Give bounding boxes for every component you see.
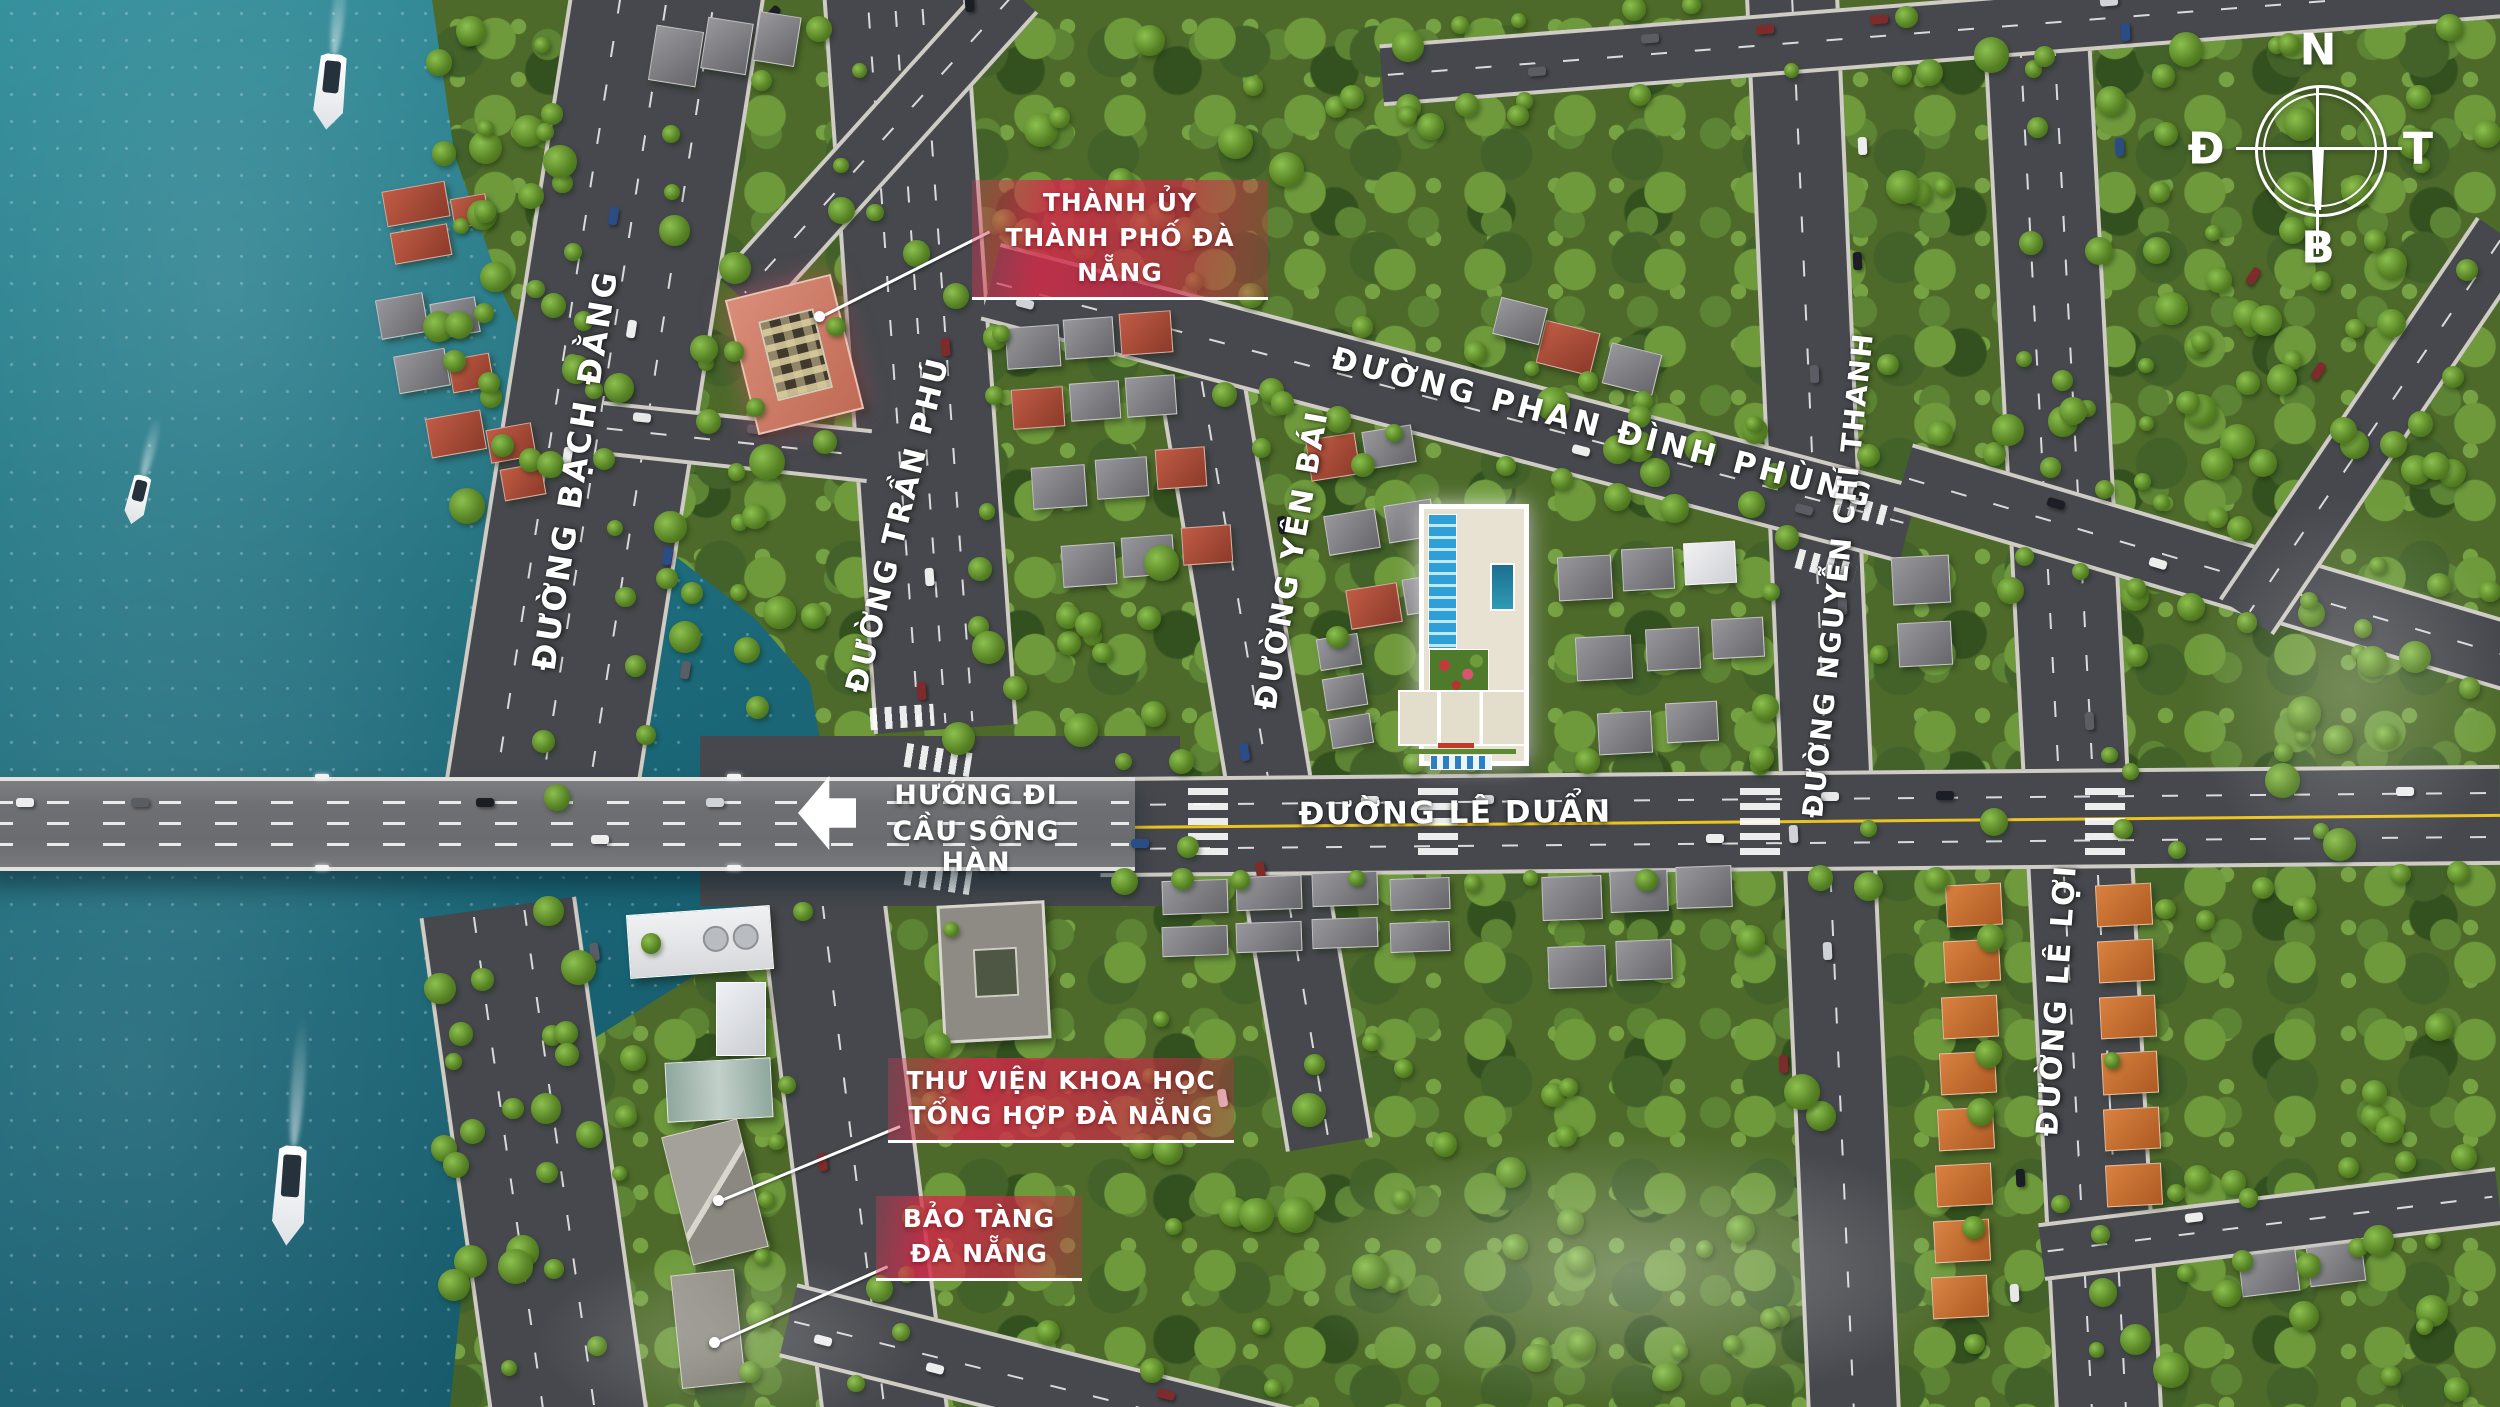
- tree: [943, 283, 969, 309]
- villa: [2103, 1107, 2161, 1152]
- tree: [2252, 877, 2274, 899]
- tree: [1559, 1078, 1578, 1097]
- tree: [813, 430, 837, 454]
- tree: [2442, 366, 2464, 388]
- tree: [866, 204, 883, 221]
- tree: [1974, 37, 2010, 73]
- tree: [1752, 694, 1779, 721]
- tree: [2249, 449, 2277, 477]
- tree: [826, 317, 846, 337]
- tree: [681, 582, 703, 604]
- tree: [2427, 573, 2451, 597]
- villa: [1005, 324, 1062, 370]
- tree: [1304, 1054, 1325, 1075]
- tree: [2374, 724, 2399, 749]
- villa: [1181, 524, 1234, 565]
- tree: [972, 631, 1005, 664]
- tree: [833, 158, 849, 174]
- tree: [2236, 371, 2260, 395]
- tree: [2380, 431, 2407, 458]
- tree: [1557, 1208, 1585, 1236]
- tree: [1141, 701, 1166, 726]
- villa: [1119, 310, 1174, 356]
- villa: [1945, 883, 2003, 928]
- tree: [1392, 30, 1424, 62]
- tree: [544, 1259, 564, 1279]
- tree: [2479, 581, 2500, 603]
- direction-line2: CẦU SÔNG HÀN: [854, 816, 1098, 878]
- tree: [1671, 1343, 1688, 1360]
- admin-tower-building: [716, 982, 766, 1056]
- tree: [778, 1076, 796, 1094]
- tree: [2059, 397, 2087, 425]
- inner-courtyard: [972, 947, 1019, 998]
- tree: [1144, 545, 1180, 581]
- tree: [534, 37, 550, 53]
- tree: [2015, 547, 2034, 566]
- villa: [1155, 446, 1208, 489]
- tree: [724, 341, 745, 362]
- tree: [607, 520, 623, 536]
- car: [1858, 137, 1868, 155]
- tree: [1927, 421, 1953, 447]
- tree: [2089, 1278, 2117, 1306]
- tree: [2177, 1264, 2195, 1282]
- tree: [801, 603, 827, 629]
- villa: [648, 25, 704, 88]
- tree: [758, 1191, 775, 1208]
- tree: [2239, 1188, 2258, 1207]
- tree: [1997, 577, 2024, 604]
- tree: [453, 218, 469, 234]
- tree: [1153, 1011, 1169, 1027]
- callout-thu-vien: THƯ VIỆN KHOA HỌC TỔNG HỢP ĐÀ NẴNG: [888, 1058, 1234, 1143]
- bridge-lamp: [315, 865, 329, 870]
- compass-letter-right: T: [2403, 124, 2433, 175]
- villa: [1011, 386, 1066, 430]
- road-right-diagonal: [2219, 217, 2500, 635]
- tree: [1140, 1358, 1164, 1382]
- tree: [1165, 1218, 1182, 1235]
- callout-bao-tang: BẢO TÀNG ĐÀ NẴNG: [876, 1196, 1082, 1281]
- tree: [456, 16, 486, 46]
- tree: [2473, 120, 2500, 149]
- tree: [1877, 354, 1899, 376]
- tree: [669, 621, 701, 653]
- rooftop-pool: [1490, 563, 1515, 611]
- tree: [480, 262, 511, 293]
- villa: [1323, 508, 1381, 556]
- tree: [751, 70, 772, 91]
- villa: [1328, 713, 1374, 749]
- car: [131, 798, 149, 807]
- car: [924, 567, 934, 586]
- tree: [1726, 1215, 1755, 1244]
- boat-deck: [322, 60, 342, 93]
- villa: [1125, 374, 1178, 417]
- tree: [2357, 646, 2388, 677]
- tree: [1964, 1334, 1985, 1355]
- villa: [1235, 921, 1302, 953]
- project-banner: [1438, 743, 1474, 748]
- tree: [443, 350, 465, 372]
- car: [2309, 361, 2327, 381]
- tree: [1808, 865, 1834, 891]
- tree: [531, 1093, 562, 1124]
- boat-deck: [281, 1154, 302, 1197]
- villa: [2105, 1163, 2163, 1208]
- car: [2085, 712, 2095, 730]
- car: [1528, 66, 1547, 76]
- zebra-crossing: [1740, 781, 1780, 855]
- callout-bao-tang-line2: ĐÀ NẴNG: [884, 1236, 1074, 1271]
- villa: [1389, 921, 1450, 953]
- tree: [2376, 1116, 2403, 1143]
- tree: [2139, 416, 2155, 432]
- tree: [2338, 1157, 2359, 1178]
- tree: [696, 409, 721, 434]
- tree: [1762, 583, 1780, 601]
- tree: [2052, 370, 2073, 391]
- boat-hull: [311, 52, 349, 131]
- tree: [2390, 864, 2410, 884]
- boat-deck: [132, 479, 148, 502]
- tree: [1567, 1330, 1596, 1359]
- tree: [1511, 13, 1526, 28]
- tree: [2091, 1225, 2109, 1243]
- villa: [1311, 871, 1378, 907]
- tree: [1775, 525, 1799, 549]
- tree: [1524, 361, 1539, 376]
- tree: [1854, 872, 1883, 901]
- tree: [1522, 1344, 1550, 1372]
- car: [1755, 24, 1774, 34]
- tree: [1760, 1308, 1781, 1329]
- tree: [2267, 365, 2297, 395]
- car: [16, 798, 34, 807]
- tree: [2191, 331, 2212, 352]
- tree: [2436, 14, 2463, 41]
- lane-line: [1909, 478, 2500, 658]
- leader-dot-thu-vien: [713, 1195, 724, 1206]
- tree: [1635, 869, 1657, 891]
- tree: [1115, 753, 1132, 770]
- tree: [654, 511, 687, 544]
- callout-thanh-uy: THÀNH ỦY THÀNH PHỐ ĐÀ NẴNG: [972, 180, 1268, 300]
- tree: [2101, 747, 2117, 763]
- tree: [2369, 557, 2387, 575]
- car: [2115, 138, 2125, 156]
- tree: [1352, 1254, 1387, 1289]
- tree: [449, 1022, 473, 1046]
- car: [1641, 33, 1660, 43]
- tree: [2406, 85, 2431, 110]
- tree: [1565, 1246, 1594, 1275]
- tree: [1749, 745, 1774, 770]
- villa: [1891, 555, 1951, 606]
- tree: [1682, 0, 1700, 14]
- tree: [1464, 341, 1487, 364]
- tree: [1604, 483, 1631, 510]
- tree: [2274, 743, 2294, 763]
- tree: [2213, 1280, 2241, 1308]
- tree: [636, 725, 656, 745]
- tree: [1992, 414, 2024, 446]
- villa: [1645, 627, 1701, 672]
- tree: [438, 1269, 470, 1301]
- leader-dot-thanh-uy: [814, 311, 825, 322]
- villa: [2097, 939, 2155, 984]
- tree: [2206, 267, 2231, 292]
- villa: [2099, 995, 2157, 1040]
- tree: [2416, 1318, 2434, 1336]
- tree: [1075, 612, 1101, 638]
- tree: [739, 1361, 761, 1383]
- left-arrow-icon: [798, 776, 856, 850]
- tree: [2289, 1301, 2319, 1331]
- tree: [620, 1045, 646, 1071]
- tree: [754, 1249, 769, 1264]
- tree: [561, 950, 596, 985]
- tree: [728, 463, 746, 481]
- tree: [763, 596, 796, 629]
- leader-dot-bao-tang: [709, 1337, 720, 1348]
- car: [2121, 23, 2131, 41]
- tree: [749, 444, 785, 480]
- tree: [491, 434, 514, 457]
- tree: [1057, 631, 1081, 655]
- tree: [1784, 1074, 1820, 1110]
- tree: [1340, 85, 1364, 109]
- compass-rose: N B Đ T: [2246, 22, 2396, 272]
- tree: [536, 1162, 558, 1184]
- tree: [564, 243, 582, 261]
- tree: [1977, 924, 2005, 952]
- villa: [1031, 464, 1088, 510]
- car: [591, 835, 609, 844]
- tree: [806, 16, 832, 42]
- tree: [2205, 225, 2221, 241]
- tree: [2265, 763, 2300, 798]
- tree: [2153, 1352, 2188, 1387]
- car: [1809, 365, 1819, 383]
- tree: [2425, 1013, 2453, 1041]
- tree: [555, 1043, 579, 1067]
- tree: [1049, 107, 1071, 129]
- tree: [1455, 93, 1479, 117]
- tree: [2125, 644, 2149, 668]
- villa: [1095, 456, 1150, 500]
- tree: [2354, 619, 2372, 637]
- tree: [469, 131, 502, 164]
- boat-hull: [270, 1145, 309, 1247]
- tree: [2196, 910, 2216, 930]
- tree: [2051, 1195, 2069, 1213]
- tree: [543, 145, 577, 179]
- tree: [1496, 456, 1516, 476]
- tree: [641, 933, 662, 954]
- tree: [1218, 124, 1253, 159]
- villa: [1345, 582, 1403, 630]
- tree: [662, 125, 680, 143]
- project-site-building: [1421, 506, 1527, 764]
- tree: [432, 141, 457, 166]
- car: [964, 0, 974, 12]
- tree: [1895, 6, 1917, 28]
- tree: [478, 372, 500, 394]
- street-label-le-duan: ĐƯỜNG LÊ DUẨN: [1298, 794, 1612, 833]
- villa: [1492, 297, 1548, 345]
- villa: [1069, 380, 1122, 421]
- car: [1706, 834, 1724, 843]
- tree: [2363, 1225, 2394, 1256]
- tree: [985, 386, 1004, 405]
- tree: [2251, 305, 2282, 336]
- front-hedge: [1404, 749, 1516, 754]
- villa: [1389, 877, 1450, 911]
- tree: [1924, 867, 1948, 891]
- tree: [2345, 319, 2365, 339]
- tree: [1555, 1125, 1577, 1147]
- tree: [1239, 1198, 1273, 1232]
- aerial-masterplan-map: ĐƯỜNG BẠCH ĐẰNG ĐƯỜNG TRẦN PHÚ ĐƯỜNG YÊN…: [0, 0, 2500, 1407]
- villa: [1621, 547, 1675, 592]
- tree: [2143, 237, 2170, 264]
- tree: [2287, 696, 2321, 730]
- roof-fan: [732, 923, 760, 951]
- tree: [587, 1336, 607, 1356]
- tree: [526, 280, 545, 299]
- lane-line: [1106, 836, 2494, 850]
- villa: [1683, 541, 1737, 586]
- tree: [2425, 1233, 2442, 1250]
- tree: [690, 335, 717, 362]
- tree: [615, 1105, 637, 1127]
- tree: [1502, 1234, 1528, 1260]
- tree: [1652, 1362, 1682, 1392]
- tree: [1886, 170, 1919, 203]
- villa: [1557, 555, 1613, 602]
- boat-wake: [328, 0, 349, 57]
- tree: [1916, 59, 1943, 86]
- tree: [2154, 122, 2178, 146]
- tree: [1892, 65, 1911, 84]
- bridge-lamp: [727, 774, 741, 779]
- compass-letter-left: Đ: [2188, 124, 2225, 175]
- tree: [1660, 494, 1688, 522]
- tree: [1736, 925, 1765, 954]
- tree: [1738, 491, 1765, 518]
- tree: [768, 1134, 785, 1151]
- tree: [2232, 1250, 2253, 1271]
- tree: [541, 103, 562, 124]
- villa: [1536, 320, 1601, 376]
- tree: [1134, 25, 1165, 56]
- tree: [498, 1249, 533, 1284]
- museum-building: [670, 1269, 746, 1389]
- villa: [1935, 1163, 1993, 1208]
- solar-panels: [1428, 514, 1457, 649]
- library-building: [661, 1119, 769, 1266]
- tree: [1169, 749, 1194, 774]
- tree: [1464, 874, 1482, 892]
- tree: [2169, 32, 2204, 67]
- tree: [2155, 292, 2188, 325]
- lane-line: [523, 910, 596, 1407]
- tree: [1860, 820, 1877, 837]
- tree: [532, 730, 555, 753]
- tree: [2311, 271, 2331, 291]
- tree: [2362, 1080, 2387, 1105]
- tree: [2152, 64, 2175, 87]
- tree: [1252, 438, 1271, 457]
- tree: [2149, 181, 2170, 202]
- villa: [1541, 875, 1602, 921]
- tree: [2113, 819, 2132, 838]
- callout-thu-vien-line2: TỔNG HỢP ĐÀ NẴNG: [896, 1098, 1226, 1133]
- tree: [1398, 106, 1417, 125]
- tree: [612, 1166, 628, 1182]
- villa: [1322, 673, 1368, 711]
- tree: [730, 584, 747, 601]
- direction-line1: HƯỚNG ĐI: [854, 780, 1098, 811]
- tree: [2134, 473, 2151, 490]
- tree: [615, 587, 636, 608]
- tree: [1036, 1320, 1061, 1345]
- tree: [746, 696, 769, 719]
- thanh-uy-courtyard: [758, 308, 833, 402]
- tree: [1351, 453, 1375, 477]
- tree: [2085, 237, 2113, 265]
- tree: [1326, 626, 1348, 648]
- car: [476, 798, 494, 807]
- tree: [2184, 1165, 2211, 1192]
- tree: [2408, 411, 2434, 437]
- villa: [1665, 701, 1719, 744]
- tree: [2167, 1184, 2185, 1202]
- tree: [2138, 358, 2153, 373]
- villa: [2095, 883, 2153, 928]
- tree: [443, 1152, 469, 1178]
- bridge-lamp: [315, 774, 329, 779]
- villa: [1311, 917, 1378, 949]
- tree: [2399, 641, 2431, 673]
- villa: [1061, 542, 1118, 588]
- car: [1823, 941, 1833, 959]
- compass-letter-top: N: [2300, 25, 2337, 76]
- tree: [2456, 259, 2478, 281]
- tree: [2444, 1377, 2469, 1402]
- tree: [1975, 1040, 2003, 1068]
- tree: [474, 200, 496, 222]
- tree: [1451, 16, 1469, 34]
- car: [1131, 839, 1149, 848]
- car: [1853, 252, 1863, 270]
- tree: [1870, 645, 1888, 663]
- tree: [1523, 870, 1538, 885]
- tree: [793, 902, 813, 922]
- tree: [847, 1375, 865, 1393]
- tree: [659, 215, 689, 245]
- entrance-canopy: [1430, 755, 1492, 770]
- car: [1789, 825, 1799, 843]
- car: [1936, 790, 1954, 799]
- villa: [1597, 711, 1653, 756]
- tree: [424, 973, 456, 1005]
- boat-hull: [122, 473, 154, 526]
- tree: [2377, 309, 2406, 338]
- tree: [1264, 1379, 1282, 1397]
